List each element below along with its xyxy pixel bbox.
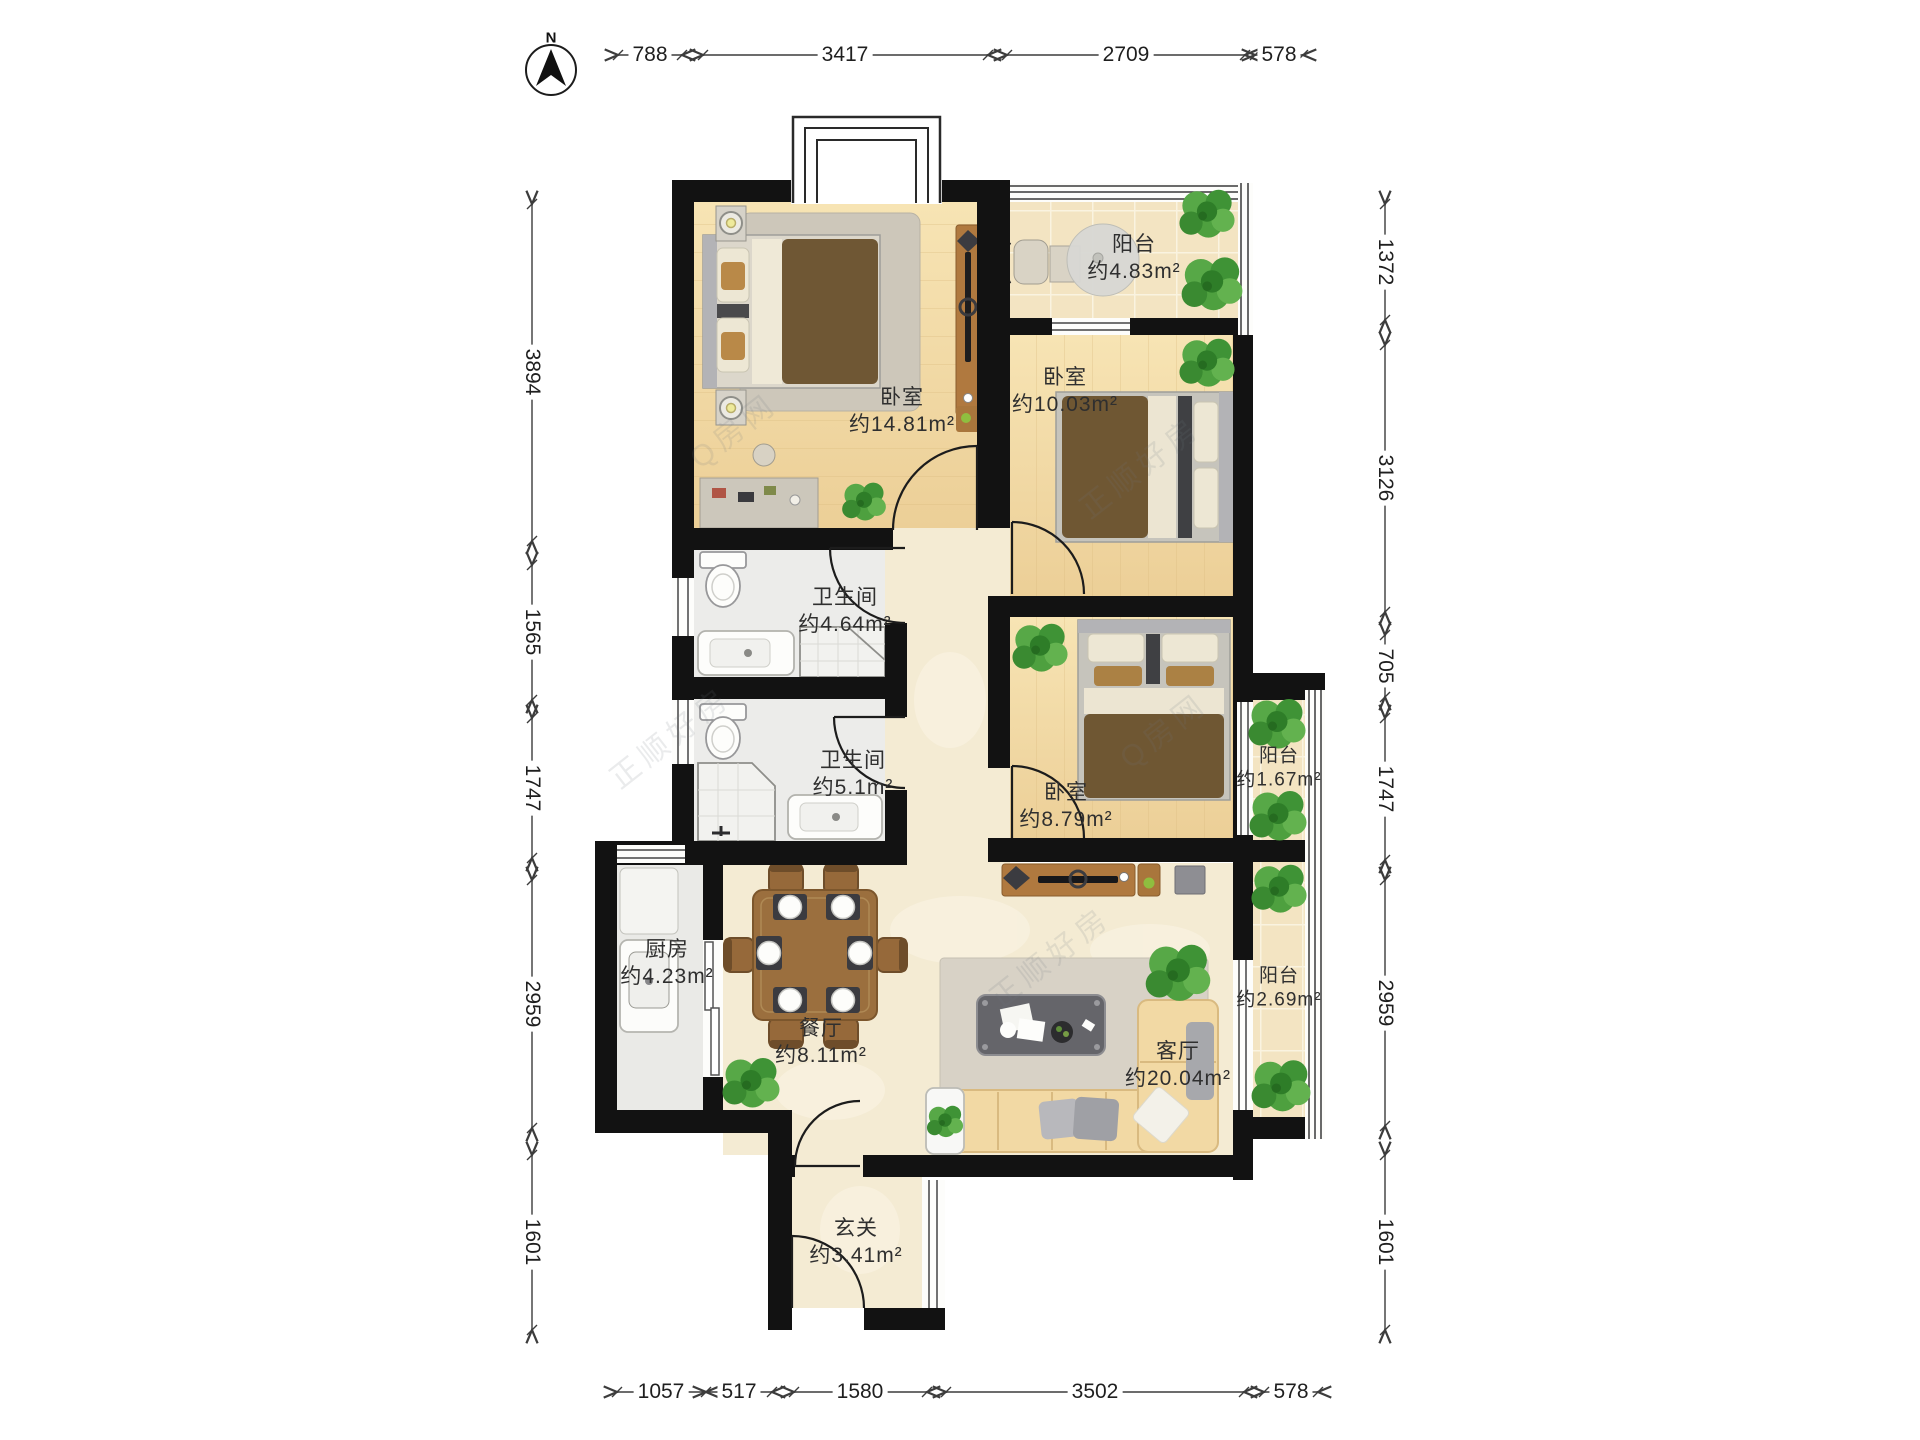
room-label-balcony-east: 阳台 约2.69m² [1236, 965, 1321, 1014]
room-label-bedroom-small: 卧室 约8.79m² [1019, 780, 1112, 834]
floorplan-canvas: Q房网 正顺好房 正顺好房 正顺好房 Q房网 [0, 0, 1920, 1440]
dim-top-1: 3417 [818, 43, 873, 67]
plant-icon [1252, 1060, 1311, 1111]
room-area: 约14.81m² [849, 412, 955, 439]
room-area: 约8.11m² [775, 1043, 867, 1070]
compass-north-label: N [546, 30, 557, 47]
dim-left-2: 1747 [520, 761, 544, 816]
dim-bottom-3: 3502 [1068, 1380, 1123, 1404]
plant-icon [1251, 865, 1306, 913]
tv-console-master-icon [956, 225, 980, 432]
dim-left-3: 2959 [520, 977, 544, 1032]
room-name: 阳台 [1087, 232, 1180, 259]
dim-right-3: 1747 [1373, 762, 1397, 817]
room-name: 餐厅 [775, 1016, 867, 1043]
room-name: 卧室 [1019, 780, 1112, 807]
compass-icon [526, 45, 576, 95]
plant-icon [1012, 624, 1067, 672]
dim-bottom-4: 578 [1269, 1380, 1312, 1404]
room-area: 约20.04m² [1125, 1066, 1231, 1093]
room-name: 客厅 [1125, 1039, 1231, 1066]
plant-icon [927, 1106, 963, 1137]
window [672, 578, 694, 636]
dim-right-4: 2959 [1373, 976, 1397, 1031]
room-label-foyer: 玄关 约3.41m² [809, 1216, 902, 1270]
room-area: 约4.23m² [620, 964, 713, 991]
dim-top-2: 2709 [1099, 43, 1154, 67]
floorplan-page: Q房网 正顺好房 正顺好房 正顺好房 Q房网 [0, 0, 1920, 1440]
room-name: 卫生间 [798, 585, 891, 612]
window [922, 1180, 945, 1308]
dim-bottom-1: 517 [717, 1380, 760, 1404]
room-label-dining: 餐厅 约8.11m² [775, 1016, 867, 1070]
dim-top-3: 578 [1257, 43, 1300, 67]
window [617, 845, 685, 863]
dresser-icon [700, 478, 818, 528]
plant-icon [723, 1058, 780, 1108]
room-area: 约4.64m² [798, 612, 891, 639]
room-name: 玄关 [809, 1216, 902, 1243]
dim-right-5: 1601 [1373, 1215, 1397, 1270]
room-area: 约8.79m² [1019, 807, 1112, 834]
shower-icon [698, 763, 775, 841]
dim-left-0: 3894 [520, 345, 544, 400]
room-name: 厨房 [620, 937, 713, 964]
room-area: 约2.69m² [1236, 989, 1321, 1013]
room-name: 阳台 [1236, 965, 1321, 989]
bed-master-icon [703, 235, 880, 388]
dim-left-4: 1601 [520, 1215, 544, 1270]
room-name: 阳台 [1236, 745, 1321, 769]
dim-left-1: 1565 [520, 605, 544, 660]
room-area: 约3.41m² [809, 1243, 902, 1270]
room-label-kitchen: 厨房 约4.23m² [620, 937, 713, 991]
room-area: 约10.03m² [1012, 392, 1118, 419]
room-label-balcony-north: 阳台 约4.83m² [1087, 232, 1180, 286]
plant-icon [842, 483, 886, 521]
plant-icon [1179, 190, 1234, 238]
dim-right-2: 705 [1373, 644, 1397, 687]
room-label-bathroom-2: 卫生间 约5.1m² [813, 748, 894, 802]
plant-icon [1146, 945, 1211, 1001]
room-area: 约5.1m² [813, 775, 894, 802]
plant-icon [1249, 699, 1306, 749]
room-name: 卧室 [1012, 365, 1118, 392]
room-area: 约4.83m² [1087, 259, 1180, 286]
bay-window [791, 115, 942, 204]
room-label-bedroom-master: 卧室 约14.81m² [849, 385, 955, 439]
room-label-bedroom-middle: 卧室 约10.03m² [1012, 365, 1118, 419]
room-label-balcony-small: 阳台 约1.67m² [1236, 745, 1321, 794]
room-label-bathroom-1: 卫生间 约4.64m² [798, 585, 891, 639]
window [1052, 318, 1130, 335]
plant-icon [1179, 339, 1234, 387]
stool-icon [753, 444, 775, 466]
plant-icon [1182, 257, 1243, 310]
room-label-living: 客厅 约20.04m² [1125, 1039, 1231, 1093]
dim-bottom-2: 1580 [833, 1380, 888, 1404]
dim-right-0: 1372 [1373, 235, 1397, 290]
room-name: 卫生间 [813, 748, 894, 775]
dim-bottom-0: 1057 [634, 1380, 689, 1404]
sink-icon [698, 631, 794, 675]
tv-console-living-icon [1002, 864, 1205, 896]
dim-top-0: 788 [628, 43, 671, 67]
room-area: 约1.67m² [1236, 769, 1321, 793]
dim-right-1: 3126 [1373, 451, 1397, 506]
plant-icon [1250, 791, 1307, 841]
room-name: 卧室 [849, 385, 955, 412]
lamp-icon [720, 212, 742, 234]
